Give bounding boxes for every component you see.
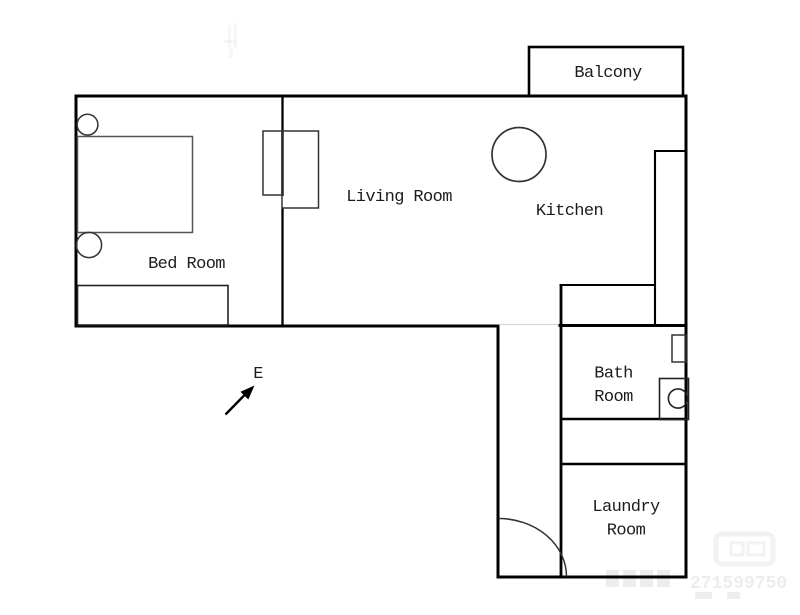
- svg-text:Bed Room: Bed Room: [148, 255, 225, 274]
- svg-text:Balcony: Balcony: [574, 64, 642, 83]
- svg-text:Room: Room: [607, 521, 646, 540]
- svg-text:Bath: Bath: [594, 364, 632, 383]
- svg-text:E: E: [253, 365, 263, 384]
- svg-text:271599750: 271599750: [690, 574, 787, 594]
- svg-text:Room: Room: [594, 388, 633, 407]
- svg-text:Kitchen: Kitchen: [536, 202, 603, 221]
- svg-text:Living Room: Living Room: [346, 188, 452, 207]
- svg-text:Laundry: Laundry: [592, 498, 660, 517]
